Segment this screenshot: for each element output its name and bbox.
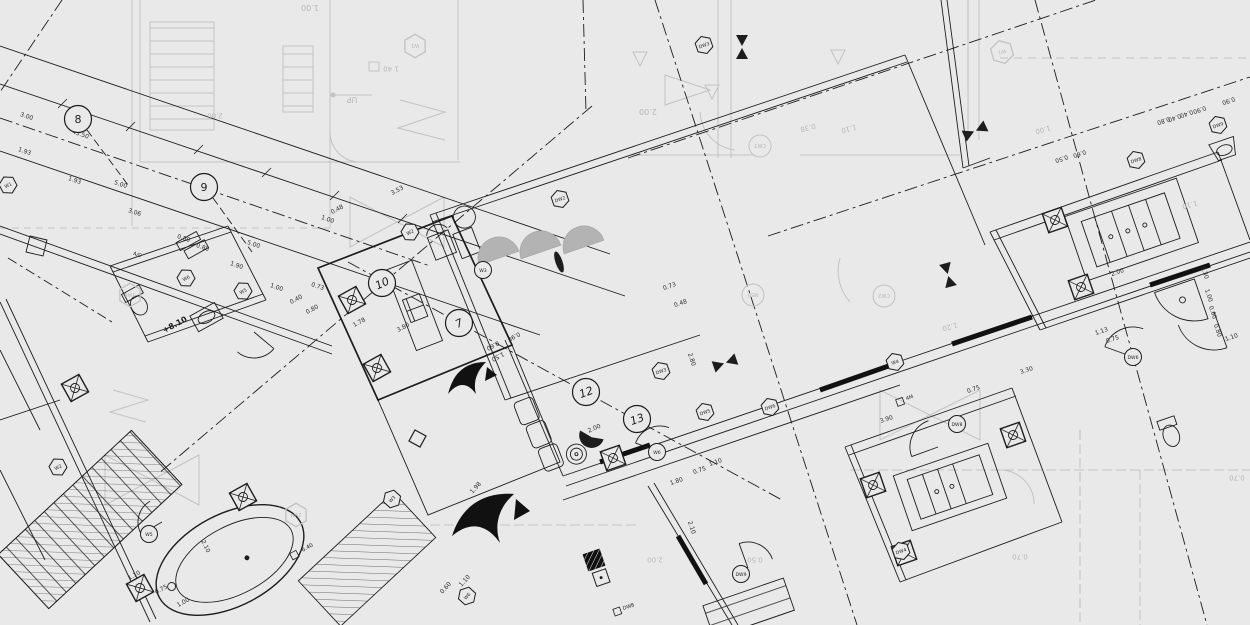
- grid-bubble: 13: [624, 406, 651, 433]
- svg-text:1.00: 1.00: [301, 3, 319, 12]
- door-tag-circle: DW6: [1125, 349, 1142, 366]
- svg-text:M5B: M5B: [747, 291, 758, 297]
- svg-text:1 40: 1 40: [383, 64, 399, 72]
- svg-text:CW2: CW2: [878, 292, 890, 298]
- svg-text:UP: UP: [346, 95, 357, 104]
- svg-text:W1: W1: [411, 42, 419, 48]
- svg-text:CW3: CW3: [754, 142, 766, 148]
- door-tag-circle: DW8: [949, 416, 966, 433]
- svg-text:0.70: 0.70: [1229, 473, 1245, 481]
- underlay-dimension-label: UP: [346, 95, 357, 104]
- svg-text:0.70: 0.70: [1012, 552, 1028, 560]
- underlay-dimension-label: 0.70: [1012, 552, 1028, 560]
- underlay-stair: [150, 22, 214, 130]
- underlay-dimension-label: 0.50: [747, 555, 763, 563]
- door-tag-circle: W6: [649, 444, 666, 461]
- underlay-dimension-label: 1 40: [383, 64, 399, 72]
- grid-bubble: 10: [369, 270, 396, 297]
- door-tag-circle: DW9: [733, 566, 750, 583]
- underlay-dimension-label: 1.00: [301, 3, 319, 12]
- svg-text:3W6: 3W6: [124, 291, 135, 297]
- svg-text:2.00: 2.00: [207, 111, 223, 119]
- svg-text:2.00: 2.00: [639, 107, 657, 116]
- underlay-stair: [283, 46, 313, 112]
- svg-text:W5: W5: [145, 532, 153, 538]
- svg-text:W6: W6: [653, 450, 661, 456]
- blueprint-canvas: 1.002.002.001 40UP0.381.101.001.201.102.…: [0, 0, 1250, 625]
- svg-text:2VM: 2VM: [291, 511, 302, 517]
- svg-text:DW9: DW9: [735, 572, 746, 578]
- floor-plan-drawing: 1.002.002.001 40UP0.381.101.001.201.102.…: [0, 0, 1250, 625]
- underlay-dimension-label: 2.00: [647, 555, 663, 563]
- door-tag-circle: W5: [141, 526, 158, 543]
- svg-text:8: 8: [75, 113, 82, 126]
- svg-text:DW6: DW6: [1127, 355, 1138, 361]
- svg-text:9: 9: [201, 181, 208, 194]
- grid-bubble: 9: [191, 174, 218, 201]
- svg-text:DW8: DW8: [951, 422, 962, 428]
- svg-text:0.50: 0.50: [747, 555, 763, 563]
- svg-text:2.00: 2.00: [647, 555, 663, 563]
- grid-bubble: 7: [446, 310, 473, 337]
- grid-bubble: 12: [573, 379, 600, 406]
- underlay-dimension-label: 2.00: [639, 107, 657, 116]
- door-tag-circle: W3: [475, 262, 492, 279]
- underlay-dot: [331, 93, 336, 98]
- grid-bubble: 8: [65, 106, 92, 133]
- underlay-dimension-label: 2.00: [207, 111, 223, 119]
- underlay-dimension-label: 0.70: [1229, 473, 1245, 481]
- svg-text:W3: W3: [479, 268, 487, 274]
